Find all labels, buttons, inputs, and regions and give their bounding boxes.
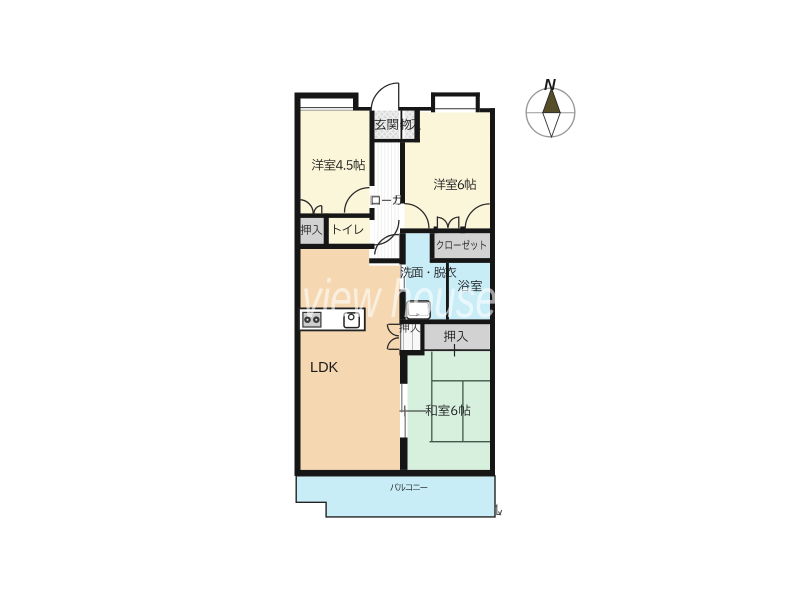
svg-text:LDK: LDK (310, 360, 339, 376)
svg-text:view house: view house (302, 269, 497, 329)
svg-text:N: N (544, 77, 556, 94)
